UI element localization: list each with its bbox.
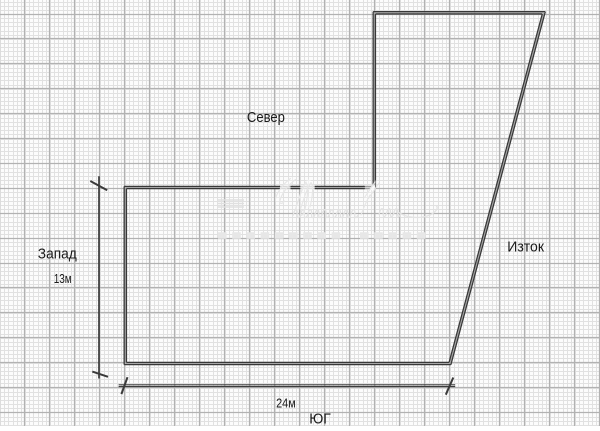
svg-text:24м: 24м — [276, 396, 296, 410]
svg-text:Север: Север — [247, 110, 285, 126]
svg-text:ЮГ: ЮГ — [309, 411, 331, 426]
svg-text:13м: 13м — [54, 272, 72, 286]
svg-text:Запад: Запад — [38, 247, 78, 263]
svg-text:Изток: Изток — [507, 240, 544, 256]
